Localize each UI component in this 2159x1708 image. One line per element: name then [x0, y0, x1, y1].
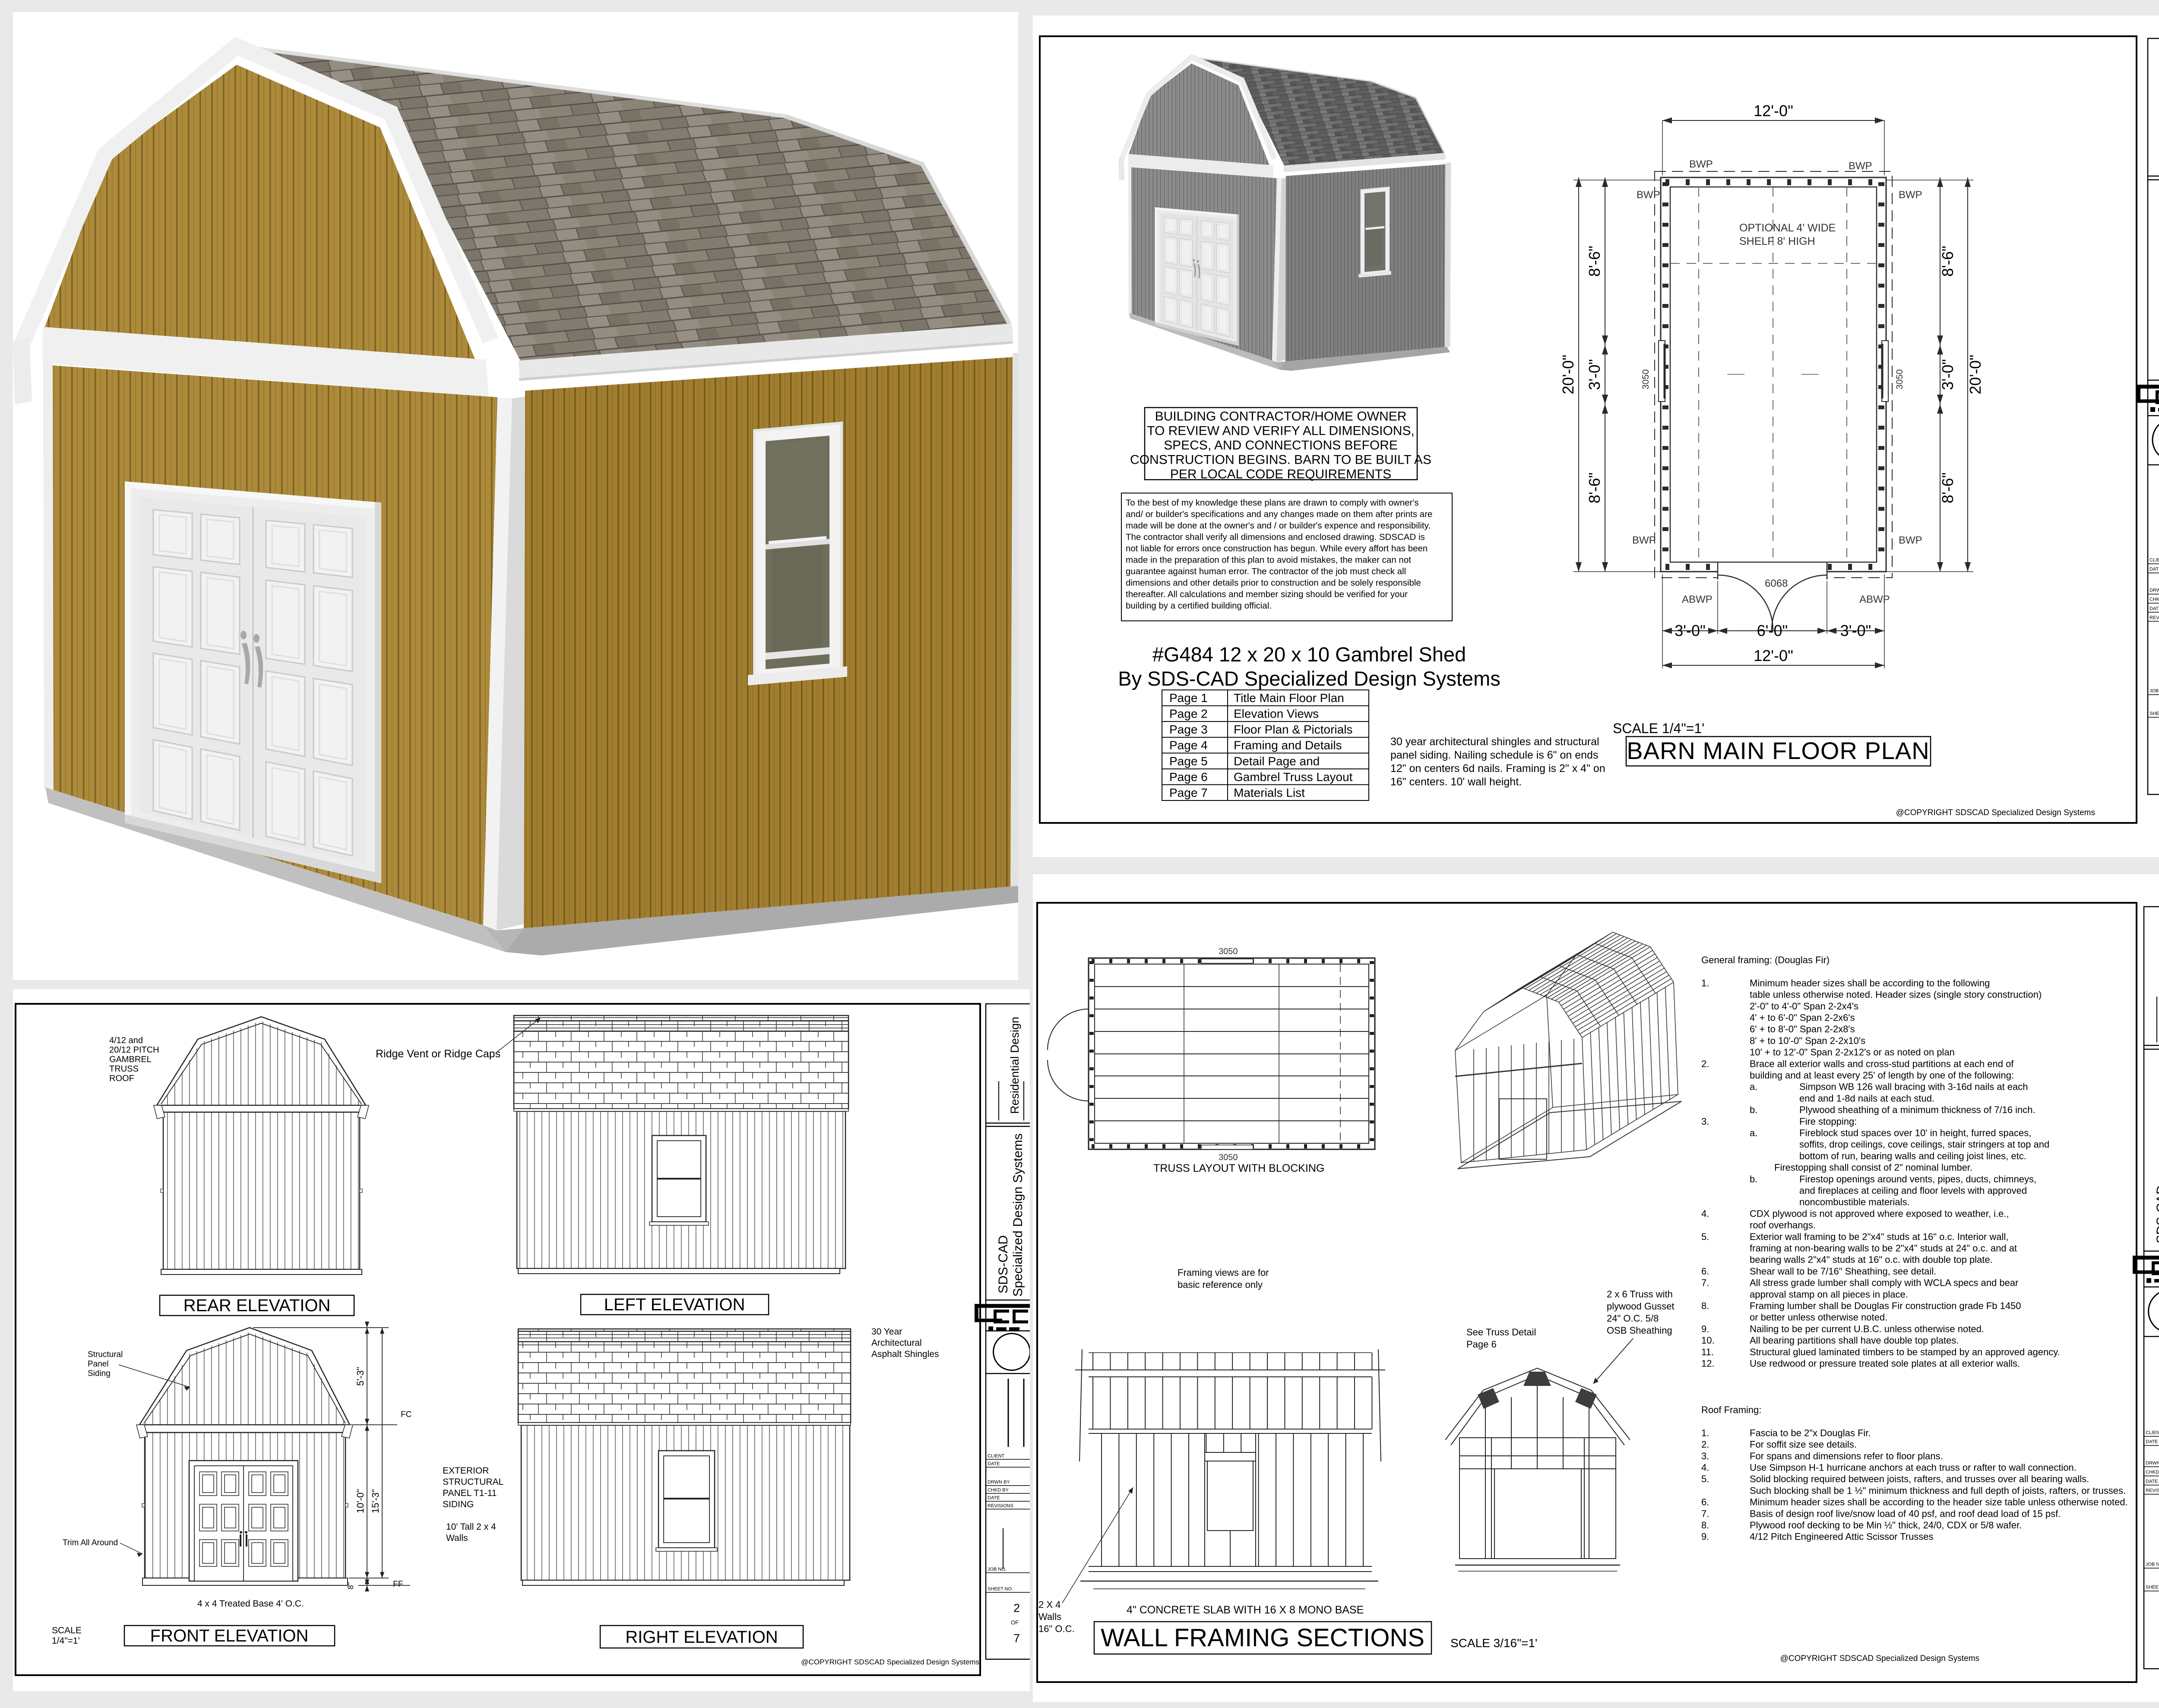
svg-text:All bearing partitions shall h: All bearing partitions shall have double…	[1750, 1335, 1959, 1346]
svg-text:12" on centers 6d nails. Fram: 12" on centers 6d nails. Framing is 2" x…	[1390, 762, 1605, 775]
svg-text:DATE: DATE	[2150, 567, 2159, 572]
svg-text:Elevation Views: Elevation Views	[1234, 707, 1319, 721]
svg-text:BARN MAIN FLOOR PLAN: BARN MAIN FLOOR PLAN	[1627, 737, 1929, 764]
svg-text:Page 1: Page 1	[1169, 691, 1208, 705]
svg-text:6.: 6.	[1701, 1497, 1709, 1508]
svg-text:BWP: BWP	[1899, 535, 1922, 546]
svg-text:3050: 3050	[1219, 947, 1238, 956]
svg-text:Fireblock stud spaces over 10': Fireblock stud spaces over 10' in height…	[1799, 1128, 2031, 1139]
svg-text:JOB NO.: JOB NO.	[2146, 1562, 2159, 1567]
svg-text:24" O.C. 5/8: 24" O.C. 5/8	[1607, 1313, 1659, 1324]
svg-text:OPTIONAL 4' WIDE: OPTIONAL 4' WIDE	[1739, 222, 1836, 234]
svg-text:JOB NO.: JOB NO.	[988, 1567, 1007, 1572]
svg-text:CDX plywood is not approved wh: CDX plywood is not approved where expose…	[1750, 1208, 2009, 1219]
svg-text:Page 2: Page 2	[1169, 707, 1208, 721]
svg-text:b.: b.	[1750, 1173, 1757, 1184]
svg-text:TRUSS LAYOUT WITH BLOCKING: TRUSS LAYOUT WITH BLOCKING	[1153, 1162, 1324, 1174]
svg-text:2 x 6 Truss with: 2 x 6 Truss with	[1607, 1289, 1673, 1300]
svg-text:b.: b.	[1750, 1104, 1757, 1115]
svg-text:ABWP: ABWP	[1682, 594, 1713, 605]
svg-text:3.: 3.	[1701, 1451, 1709, 1461]
svg-text:Plywood sheathing of a minimum: Plywood sheathing of a minimum thickness…	[1799, 1104, 2036, 1115]
svg-text:Framing lumber shall be Dougla: Framing lumber shall be Douglas Fir cons…	[1750, 1300, 2021, 1311]
svg-text:FRONT ELEVATION: FRONT ELEVATION	[150, 1626, 309, 1645]
svg-text:5'-3": 5'-3"	[355, 1367, 366, 1386]
svg-text:thereafter. All calculations: thereafter. All calculations and member …	[1126, 589, 1408, 599]
svg-text:10' + to 12'-0" Span 2-2x12: 10' + to 12'-0" Span 2-2x12's or as note…	[1750, 1047, 1955, 1058]
svg-text:7: 7	[1013, 1632, 1020, 1645]
svg-text:1/4"=1': 1/4"=1'	[52, 1636, 80, 1646]
svg-text:Minimum header sizes shall be: Minimum header sizes shall be according …	[1750, 1497, 2128, 1508]
svg-text:@COPYRIGHT SDSCAD Specialized: @COPYRIGHT SDSCAD Specialized Design Sys…	[1780, 1654, 1979, 1663]
svg-text:DATE: DATE	[2146, 1479, 2158, 1484]
svg-text:3050: 3050	[1219, 1153, 1238, 1162]
svg-text:@COPYRIGHT SDSCAD Specialized: @COPYRIGHT SDSCAD Specialized Design Sys…	[1896, 808, 2095, 817]
svg-text:Ridge Vent or Ridge Caps: Ridge Vent or Ridge Caps	[376, 1048, 500, 1060]
svg-text:a.: a.	[1750, 1082, 1757, 1092]
svg-text:20/12 PITCH: 20/12 PITCH	[109, 1045, 159, 1055]
svg-text:20'-0": 20'-0"	[1559, 355, 1577, 395]
svg-text:For soffit size see details.: For soffit size see details.	[1750, 1439, 1857, 1450]
svg-text:3'-0": 3'-0"	[1586, 359, 1603, 390]
svg-text:Shear wall to be 7/16" Sheathi: Shear wall to be 7/16" Sheathing, see de…	[1750, 1266, 1936, 1277]
svg-text:1.: 1.	[1701, 1427, 1709, 1438]
svg-text:Firestopping shall consist of: Firestopping shall consist of 2" nominal…	[1774, 1162, 1972, 1173]
svg-text:bottom of run, bearing walls a: bottom of run, bearing walls and ceiling…	[1799, 1151, 2026, 1161]
svg-text:not liable for errors once con: not liable for errors once construction …	[1126, 544, 1428, 554]
svg-text:JOB NO.: JOB NO.	[2150, 689, 2159, 694]
svg-text:roof overhangs.: roof overhangs.	[1750, 1220, 1816, 1230]
svg-text:SCALE 1/4"=1': SCALE 1/4"=1'	[1613, 721, 1704, 736]
svg-text:Page 6: Page 6	[1169, 770, 1208, 784]
svg-text:Specialized Design Systems: Specialized Design Systems	[1011, 1133, 1025, 1297]
svg-text:2.: 2.	[1701, 1439, 1709, 1450]
svg-text:Roof Framing:: Roof Framing:	[1701, 1404, 1761, 1415]
svg-text:noncombustible materials.: noncombustible materials.	[1799, 1197, 1910, 1208]
svg-text:CHKD BY: CHKD BY	[2150, 597, 2159, 602]
svg-text:Framing and Details: Framing and Details	[1234, 739, 1342, 752]
svg-text:Title Main Floor Plan: Title Main Floor Plan	[1234, 691, 1344, 705]
svg-text:REVISIONS: REVISIONS	[2146, 1488, 2159, 1493]
svg-text:Panel: Panel	[88, 1360, 109, 1369]
svg-text:Structural glued laminated tim: Structural glued laminated timbers to be…	[1750, 1347, 2060, 1357]
svg-text:Siding: Siding	[88, 1369, 111, 1378]
svg-text:8'-6": 8'-6"	[1586, 246, 1603, 277]
svg-text:@COPYRIGHT SDSCAD Specialized: @COPYRIGHT SDSCAD Specialized Design Sys…	[801, 1658, 979, 1666]
svg-text:SDS-CAD: SDS-CAD	[2154, 1185, 2159, 1243]
svg-text:General framing: (Douglas Fir: General framing: (Douglas Fir)	[1701, 955, 1830, 965]
svg-text:5.: 5.	[1701, 1231, 1709, 1242]
svg-text:2 X 4: 2 X 4	[1038, 1599, 1061, 1610]
svg-text:SCALE 3/16"=1': SCALE 3/16"=1'	[1450, 1636, 1537, 1650]
svg-text:Page 5: Page 5	[1169, 754, 1208, 768]
svg-text:Exterior wall framing to be 2": Exterior wall framing to be 2"x4" studs …	[1750, 1231, 2008, 1242]
svg-text:8'-6": 8'-6"	[1939, 246, 1956, 277]
svg-text:Asphalt Shingles: Asphalt Shingles	[871, 1349, 939, 1359]
svg-text:DRWN BY: DRWN BY	[2146, 1461, 2159, 1466]
svg-text:3'-0": 3'-0"	[1939, 359, 1956, 390]
svg-text:Such blocking shall be 1 ½" mi: Such blocking shall be 1 ½" minimum thic…	[1750, 1485, 2126, 1496]
svg-text:Brace all exterior walls and c: Brace all exterior walls and cross-stud …	[1750, 1058, 2014, 1069]
svg-text:9.: 9.	[1701, 1323, 1709, 1334]
svg-text:8.: 8.	[1701, 1300, 1709, 1311]
svg-text:SPECS, AND CONNECTIONS BEFORE: SPECS, AND CONNECTIONS BEFORE	[1164, 438, 1398, 452]
svg-text:CLIENT: CLIENT	[988, 1454, 1004, 1459]
svg-text:REAR ELEVATION: REAR ELEVATION	[184, 1296, 331, 1315]
svg-text:RIGHT ELEVATION: RIGHT ELEVATION	[625, 1628, 778, 1647]
svg-text:10.: 10.	[1701, 1335, 1715, 1346]
svg-text:16" centers. 10' wall height.: 16" centers. 10' wall height.	[1390, 776, 1522, 788]
svg-text:ROOF: ROOF	[109, 1074, 134, 1083]
svg-text:Page 7: Page 7	[1169, 786, 1208, 799]
svg-text:To the best of my knowledge th: To the best of my knowledge these plans …	[1126, 498, 1418, 508]
svg-text:WALL FRAMING SECTIONS: WALL FRAMING SECTIONS	[1101, 1624, 1425, 1652]
svg-text:REVISIONS: REVISIONS	[2150, 615, 2159, 620]
svg-text:Fascia to be 2"x Douglas Fir.: Fascia to be 2"x Douglas Fir.	[1750, 1427, 1871, 1438]
svg-text:FF: FF	[393, 1580, 403, 1589]
svg-text:4" CONCRETE SLAB WITH 16 X 8 M: 4" CONCRETE SLAB WITH 16 X 8 MONO BASE	[1127, 1604, 1364, 1616]
svg-text:SHEET NO.: SHEET NO.	[2146, 1585, 2159, 1590]
svg-text:1.: 1.	[1701, 977, 1709, 988]
svg-text:2'-0" to 4'-0" Span 2-2x4's: 2'-0" to 4'-0" Span 2-2x4's	[1750, 1001, 1858, 1012]
svg-text:8' + to 10'-0" Span 2-2x10': 8' + to 10'-0" Span 2-2x10's	[1750, 1035, 1865, 1046]
svg-text:SDS-CAD: SDS-CAD	[996, 1235, 1010, 1294]
svg-text:8.: 8.	[1701, 1520, 1709, 1531]
svg-text:TO REVIEW AND VERIFY ALL DIMEN: TO REVIEW AND VERIFY ALL DIMENSIONS,	[1147, 424, 1415, 438]
svg-text:EXTERIOR: EXTERIOR	[443, 1466, 489, 1476]
svg-text:6068: 6068	[1765, 578, 1788, 589]
svg-text:made in the preparation of thi: made in the preparation of this plan to …	[1126, 555, 1411, 565]
svg-text:CLIENT: CLIENT	[2150, 558, 2159, 563]
svg-text:Use Simpson H-1 hurricane anch: Use Simpson H-1 hurricane anchors at eac…	[1750, 1462, 2077, 1473]
svg-text:BWP: BWP	[1632, 535, 1656, 546]
svg-text:plywood Gusset: plywood Gusset	[1607, 1301, 1675, 1312]
svg-text:Architectural: Architectural	[871, 1338, 922, 1348]
svg-text:Framing views are for: Framing views are for	[1178, 1267, 1269, 1278]
svg-text:Plywood roof decking to be Min: Plywood roof decking to be Min ½" thick,…	[1750, 1520, 2022, 1531]
svg-text:2: 2	[1013, 1602, 1020, 1615]
svg-text:3.: 3.	[1701, 1116, 1709, 1127]
svg-text:6' + to 8'-0" Span 2-2x8's: 6' + to 8'-0" Span 2-2x8's	[1750, 1024, 1855, 1034]
svg-text:3050: 3050	[1895, 369, 1905, 389]
svg-text:4/12 and: 4/12 and	[109, 1036, 143, 1045]
svg-text:16" O.C.: 16" O.C.	[1038, 1623, 1075, 1634]
svg-text:SHEET NO.: SHEET NO.	[988, 1587, 1013, 1592]
svg-text:12'-0": 12'-0"	[1754, 102, 1793, 120]
svg-text:BWP: BWP	[1849, 160, 1872, 172]
svg-text:10'-0": 10'-0"	[355, 1489, 366, 1513]
svg-text:5.: 5.	[1701, 1474, 1709, 1484]
svg-text:TRUSS: TRUSS	[109, 1064, 139, 1074]
svg-text:Residential Design: Residential Design	[1008, 1017, 1021, 1114]
svg-text:For spans and dimensions refer: For spans and dimensions refer to floor …	[1750, 1451, 1943, 1461]
svg-text:30 year architectural shingles: 30 year architectural shingles and struc…	[1390, 736, 1599, 748]
svg-text:Simpson WB 126 wall bracing wi: Simpson WB 126 wall bracing with 3-16d n…	[1799, 1082, 2028, 1092]
svg-text:DATE: DATE	[988, 1496, 1000, 1501]
svg-text:approval stamp on all pieces i: approval stamp on all pieces in place.	[1750, 1289, 1908, 1300]
svg-text:By SDS-CAD Specialized Design: By SDS-CAD Specialized Design Systems	[1118, 667, 1500, 690]
svg-text:2.: 2.	[1701, 1058, 1709, 1069]
svg-text:Page 4: Page 4	[1169, 739, 1208, 752]
svg-text:10' Tall 2 x 4: 10' Tall 2 x 4	[446, 1522, 496, 1532]
svg-text:7.: 7.	[1701, 1278, 1709, 1288]
svg-text:FC: FC	[401, 1410, 412, 1419]
svg-text:PANEL T1-11: PANEL T1-11	[443, 1488, 497, 1498]
svg-text:soffits, drop ceilings, cove c: soffits, drop ceilings, cove ceilings, s…	[1799, 1139, 2049, 1150]
svg-text:SIDING: SIDING	[443, 1499, 474, 1509]
svg-text:building by a certified buildi: building by a certified building officia…	[1126, 601, 1272, 611]
svg-text:ABWP: ABWP	[1859, 594, 1890, 605]
svg-text:BWP: BWP	[1637, 189, 1660, 201]
svg-text:BWP: BWP	[1899, 189, 1922, 201]
svg-text:Solid blocking required betwee: Solid blocking required between joists, …	[1750, 1474, 2089, 1484]
svg-text:CONSTRUCTION BEGINS. BARN TO B: CONSTRUCTION BEGINS. BARN TO BE BUILT AS	[1130, 453, 1431, 467]
svg-text:4.: 4.	[1701, 1462, 1709, 1473]
svg-text:All stress grade lumber shall: All stress grade lumber shall comply wit…	[1750, 1278, 2018, 1288]
svg-text:made will be done at the owner: made will be done at the owner's and / o…	[1126, 521, 1431, 531]
svg-text:8'-6": 8'-6"	[1586, 472, 1603, 503]
svg-text:BWP: BWP	[1689, 158, 1713, 170]
svg-text:Materials List: Materials List	[1234, 786, 1305, 799]
svg-text:Structural: Structural	[88, 1350, 123, 1359]
svg-text:Minimum header sizes shall be: Minimum header sizes shall be according …	[1750, 977, 1990, 988]
svg-text:and/ or builder's specificatio: and/ or builder's specifications and any…	[1126, 509, 1432, 519]
svg-text:bearing walls 2"x4" studs at 1: bearing walls 2"x4" studs at 16" o.c. wi…	[1750, 1254, 1993, 1265]
svg-text:DATE: DATE	[988, 1461, 1000, 1467]
svg-text:CHKD BY: CHKD BY	[988, 1487, 1009, 1493]
svg-text:8'-6": 8'-6"	[1939, 472, 1956, 503]
svg-text:Use redwood or pressure treate: Use redwood or pressure treated sole pla…	[1750, 1358, 2020, 1369]
svg-text:guarantee against human error.: guarantee against human error. The contr…	[1126, 566, 1406, 576]
svg-text:3'-0": 3'-0"	[1675, 622, 1706, 639]
svg-text:See Truss Detail: See Truss Detail	[1466, 1327, 1536, 1338]
svg-text:basic reference only: basic reference only	[1178, 1279, 1263, 1290]
svg-text:15'-3": 15'-3"	[370, 1489, 381, 1513]
svg-text:20'-0": 20'-0"	[1966, 355, 1984, 395]
svg-text:Floor Plan & Pictorials: Floor Plan & Pictorials	[1234, 723, 1352, 736]
svg-text:6.: 6.	[1701, 1266, 1709, 1277]
svg-text:LEFT ELEVATION: LEFT ELEVATION	[604, 1295, 745, 1314]
svg-text:Basis of design roof live/snow: Basis of design roof live/snow load of 4…	[1750, 1508, 2061, 1519]
svg-text:OF: OF	[1011, 1619, 1019, 1626]
svg-text:#G484 12 x 20 x 10 Gambrel She: #G484 12 x 20 x 10 Gambrel Shed	[1152, 643, 1466, 666]
svg-text:4.: 4.	[1701, 1208, 1709, 1219]
svg-text:REVISIONS: REVISIONS	[988, 1503, 1013, 1509]
svg-text:The contractor shall verify al: The contractor shall verify all dimensio…	[1126, 532, 1425, 542]
svg-text:and fireplaces at ceiling and: and fireplaces at ceiling and floor leve…	[1799, 1185, 2027, 1196]
svg-text:4 x 4 Treated Base 4' O.C.: 4 x 4 Treated Base 4' O.C.	[197, 1599, 304, 1609]
svg-text:Walls: Walls	[446, 1533, 468, 1543]
svg-text:12.: 12.	[1701, 1358, 1715, 1369]
svg-text:11.: 11.	[1701, 1347, 1714, 1357]
svg-text:panel siding. Nailing schedul: panel siding. Nailing schedule is 6" on …	[1390, 749, 1598, 761]
svg-text:Nailing to be per current U.B.: Nailing to be per current U.B.C. unless …	[1750, 1323, 1984, 1334]
svg-text:DRWN BY: DRWN BY	[988, 1480, 1010, 1485]
svg-text:9.: 9.	[1701, 1531, 1709, 1542]
svg-text:3050: 3050	[1641, 369, 1651, 389]
svg-text:Fire stopping:: Fire stopping:	[1799, 1116, 1857, 1127]
svg-text:SHEET NO.: SHEET NO.	[2150, 711, 2159, 716]
svg-text:DRWN BY: DRWN BY	[2150, 588, 2159, 593]
svg-text:SHELF 8' HIGH: SHELF 8' HIGH	[1739, 235, 1815, 247]
svg-text:CHKD BY: CHKD BY	[2146, 1470, 2159, 1475]
svg-text:or better unless otherwise not: or better unless otherwise noted.	[1750, 1312, 1887, 1323]
svg-text:8": 8"	[346, 1582, 355, 1589]
svg-text:dimensions and other details p: dimensions and other details prior to co…	[1126, 578, 1421, 588]
svg-text:GAMBREL: GAMBREL	[109, 1055, 152, 1064]
svg-text:Detail Page and: Detail Page and	[1234, 754, 1320, 768]
svg-text:7.: 7.	[1701, 1508, 1709, 1519]
svg-text:Firestop openings around vents: Firestop openings around vents, pipes, d…	[1799, 1173, 2036, 1184]
svg-text:OSB Sheathing: OSB Sheathing	[1607, 1325, 1672, 1336]
svg-text:DATE: DATE	[2150, 606, 2159, 611]
svg-text:BUILDING CONTRACTOR/HOME OWNER: BUILDING CONTRACTOR/HOME OWNER	[1155, 409, 1407, 424]
svg-text:end and 1-8d nails at each stu: end and 1-8d nails at each stud.	[1799, 1093, 1934, 1104]
svg-text:CLIENT: CLIENT	[2146, 1430, 2159, 1435]
svg-text:STRUCTURAL: STRUCTURAL	[443, 1477, 503, 1487]
svg-text:Trim All Around: Trim All Around	[63, 1538, 118, 1547]
svg-text:4/12 Pitch Engineered Attic Sc: 4/12 Pitch Engineered Attic Scissor Trus…	[1750, 1531, 1934, 1542]
svg-text:Page 3: Page 3	[1169, 723, 1208, 736]
svg-text:SCALE: SCALE	[52, 1626, 82, 1635]
svg-text:Page 6: Page 6	[1466, 1339, 1497, 1350]
svg-text:PER LOCAL CODE REQUIREMENTS: PER LOCAL CODE REQUIREMENTS	[1170, 467, 1391, 481]
svg-text:framing at non-bearing walls t: framing at non-bearing walls to be 2"x4"…	[1750, 1243, 2017, 1254]
svg-text:building and at least every 25: building and at least every 25' of lengt…	[1750, 1070, 2014, 1081]
svg-text:4' + to 6'-0" Span 2-2x6's: 4' + to 6'-0" Span 2-2x6's	[1750, 1012, 1855, 1023]
svg-text:Walls: Walls	[1038, 1611, 1061, 1622]
svg-text:30 Year: 30 Year	[871, 1327, 902, 1337]
svg-text:3'-0": 3'-0"	[1840, 622, 1871, 639]
svg-text:12'-0": 12'-0"	[1754, 647, 1793, 664]
svg-text:a.: a.	[1750, 1128, 1757, 1139]
svg-text:6'-0": 6'-0"	[1757, 622, 1788, 639]
svg-text:DATE: DATE	[2146, 1439, 2158, 1445]
svg-text:table unless otherwise noted.: table unless otherwise noted. Header siz…	[1750, 989, 2042, 1000]
svg-text:Gambrel Truss Layout: Gambrel Truss Layout	[1234, 770, 1353, 784]
